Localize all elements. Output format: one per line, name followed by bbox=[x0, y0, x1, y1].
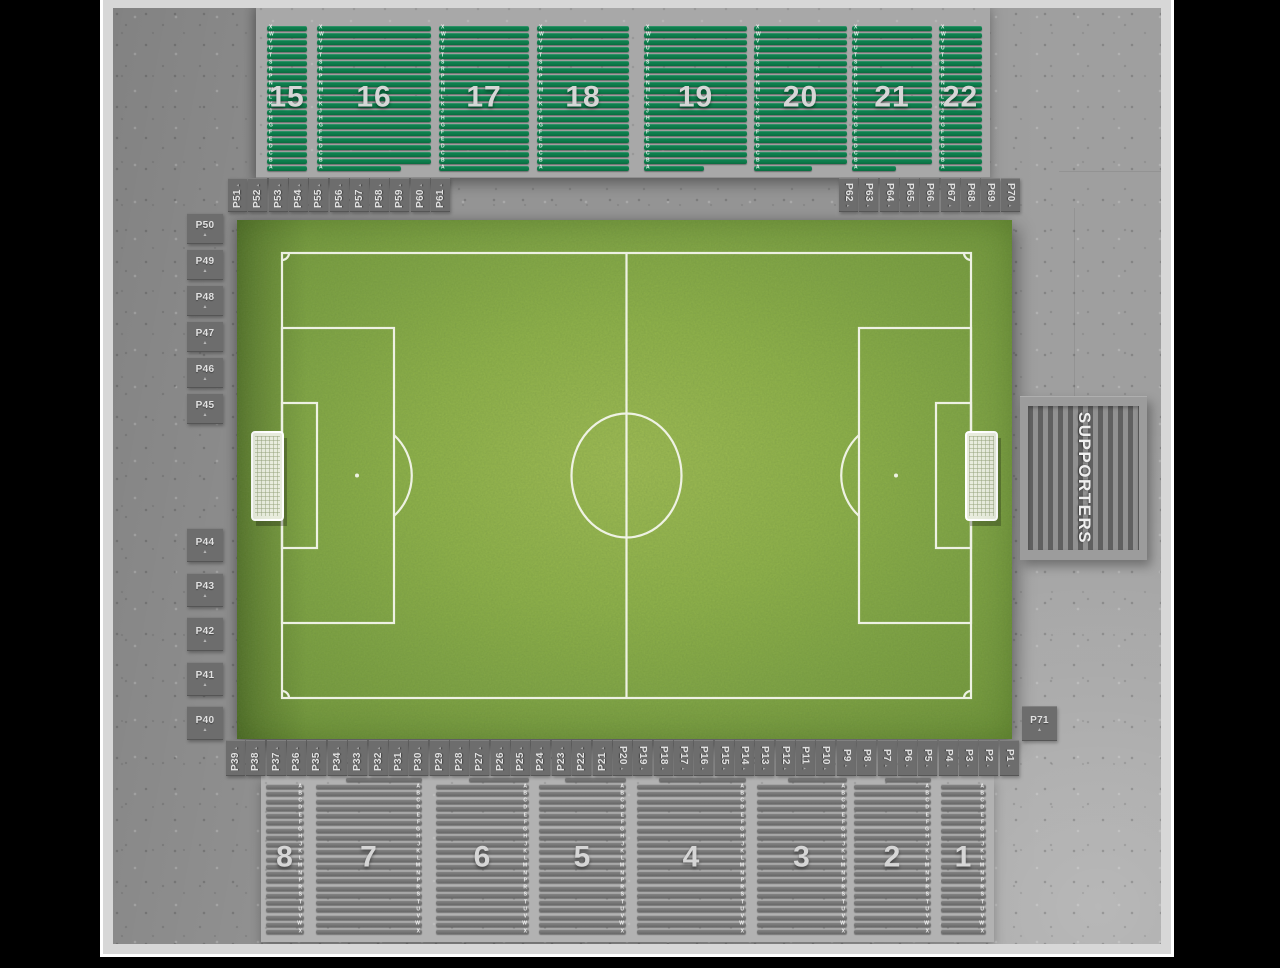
row-letter: S bbox=[926, 893, 929, 898]
gate-p69[interactable]: P69▲ bbox=[981, 178, 1000, 212]
seat-row: B bbox=[644, 159, 747, 164]
gate-p51[interactable]: P51▲ bbox=[228, 178, 247, 212]
section-17[interactable]: XWVUTSRPNMLKJHGFEDCBA17 bbox=[439, 26, 529, 171]
row-letter: H bbox=[298, 835, 302, 840]
seat-row: K bbox=[852, 103, 932, 108]
seat-row: A bbox=[939, 166, 982, 171]
section-3[interactable]: ABCDEFGHJKLMNPRSTUVWX3 bbox=[757, 784, 847, 934]
gate-p28[interactable]: P28▲ bbox=[450, 740, 469, 776]
seat-row: B bbox=[854, 791, 931, 796]
row-letter: T bbox=[756, 54, 759, 59]
seat-row: U bbox=[637, 907, 746, 912]
seat-row: A bbox=[644, 166, 704, 171]
gate-pin-icon: ▲ bbox=[846, 203, 851, 207]
gate-p17[interactable]: P17▲ bbox=[674, 740, 693, 776]
row-letter: E bbox=[319, 138, 322, 143]
gate-p65[interactable]: P65▲ bbox=[900, 178, 919, 212]
gate-pin-icon: ▲ bbox=[416, 746, 421, 750]
gate-p7[interactable]: P7▲ bbox=[878, 740, 897, 776]
row-letter: M bbox=[756, 89, 760, 94]
gate-p4[interactable]: P4▲ bbox=[939, 740, 958, 776]
row-letter: K bbox=[620, 849, 624, 854]
row-letter: S bbox=[621, 893, 624, 898]
gate-p18[interactable]: P18▲ bbox=[654, 740, 673, 776]
row-letter: G bbox=[298, 828, 302, 833]
gate-p29[interactable]: P29▲ bbox=[430, 740, 449, 776]
seat-row: C bbox=[267, 152, 307, 157]
seat-row: J bbox=[316, 842, 422, 847]
seat-row: X bbox=[436, 929, 529, 934]
seat-row: L bbox=[266, 857, 304, 862]
gate-p40[interactable]: P40▲ bbox=[187, 706, 223, 740]
gate-label: P56▲ bbox=[334, 183, 345, 208]
seat-row: D bbox=[539, 806, 626, 811]
seat-row: U bbox=[439, 47, 529, 52]
gate-label: P71 bbox=[1030, 715, 1049, 726]
section-22[interactable]: XWVUTSRPNMLKJHGFEDCBA22 bbox=[939, 26, 982, 171]
seat-row: W bbox=[644, 33, 747, 38]
seat-row: R bbox=[852, 68, 932, 73]
row-letter: L bbox=[646, 96, 649, 101]
row-letter: S bbox=[854, 61, 857, 66]
seat-row: A bbox=[754, 166, 812, 171]
row-letter: S bbox=[417, 893, 420, 898]
row-letter: T bbox=[741, 900, 744, 905]
gate-p47[interactable]: P47▲ bbox=[187, 321, 223, 352]
row-letter: B bbox=[620, 791, 624, 796]
seat-row: X bbox=[939, 26, 982, 31]
seat-row: P bbox=[537, 75, 629, 80]
row-letter: J bbox=[441, 110, 444, 115]
gate-pin-icon: ▲ bbox=[907, 203, 912, 207]
row-letter: F bbox=[319, 131, 322, 136]
row-letter: T bbox=[299, 900, 302, 905]
seat-row: B bbox=[941, 791, 986, 796]
seat-row: H bbox=[852, 117, 932, 122]
row-letter: J bbox=[299, 842, 302, 847]
row-letter: N bbox=[523, 871, 527, 876]
football-pitch bbox=[237, 220, 1012, 739]
row-letter: C bbox=[841, 799, 845, 804]
gate-label: P3▲ bbox=[963, 748, 974, 767]
row-letter: C bbox=[646, 152, 650, 157]
gate-pin-icon: ▲ bbox=[722, 766, 727, 770]
row-letter: W bbox=[269, 33, 274, 38]
row-letter: U bbox=[441, 47, 445, 52]
gate-p25[interactable]: P25▲ bbox=[511, 740, 530, 776]
row-letter: P bbox=[741, 878, 744, 883]
gate-p71[interactable]: P71▲ bbox=[1022, 706, 1057, 741]
row-letter: V bbox=[441, 40, 444, 45]
gate-label: P7▲ bbox=[882, 748, 893, 767]
gate-p50[interactable]: P50▲ bbox=[187, 213, 223, 244]
row-letter: T bbox=[646, 54, 649, 59]
row-letter: A bbox=[539, 166, 543, 171]
gate-p26[interactable]: P26▲ bbox=[491, 740, 510, 776]
row-letter: A bbox=[740, 784, 744, 789]
seat-row: N bbox=[317, 82, 431, 87]
row-letter: J bbox=[941, 110, 944, 115]
row-letter: W bbox=[924, 922, 929, 927]
gate-pin-icon: ▲ bbox=[233, 746, 238, 750]
seat-row: S bbox=[637, 893, 746, 898]
gate-p64[interactable]: P64▲ bbox=[880, 178, 899, 212]
row-letter: J bbox=[756, 110, 759, 115]
gate-p20[interactable]: P20▲ bbox=[613, 740, 632, 776]
gate-p16[interactable]: P16▲ bbox=[694, 740, 713, 776]
seat-row: V bbox=[439, 40, 529, 45]
seat-row: M bbox=[439, 89, 529, 94]
gate-label: P19▲ bbox=[637, 746, 648, 771]
gate-p11[interactable]: P11▲ bbox=[796, 740, 815, 776]
seat-row: G bbox=[644, 124, 747, 129]
row-letter: G bbox=[620, 828, 624, 833]
row-letter: L bbox=[854, 96, 857, 101]
seat-row: E bbox=[754, 138, 847, 143]
row-letter: K bbox=[854, 103, 858, 108]
gate-label: P1▲ bbox=[1004, 748, 1015, 767]
seat-row: L bbox=[754, 96, 847, 101]
seat-row: L bbox=[757, 857, 847, 862]
seat-row: E bbox=[537, 138, 629, 143]
gate-pin-icon: ▲ bbox=[396, 746, 401, 750]
seat-row: R bbox=[267, 68, 307, 73]
gate-pin-icon: ▲ bbox=[661, 766, 666, 770]
gate-p41[interactable]: P41▲ bbox=[187, 662, 223, 696]
seat-row: L bbox=[941, 857, 986, 862]
gate-label: P9▲ bbox=[841, 748, 852, 767]
seat-row: F bbox=[317, 131, 431, 136]
row-letter: M bbox=[925, 864, 929, 869]
seat-row: W bbox=[439, 33, 529, 38]
row-letter: G bbox=[756, 124, 760, 129]
section-4[interactable]: ABCDEFGHJKLMNPRSTUVWX4 bbox=[637, 784, 746, 934]
section-6[interactable]: ABCDEFGHJKLMNPRSTUVWX6 bbox=[436, 784, 529, 934]
section-18[interactable]: XWVUTSRPNMLKJHGFEDCBA18 bbox=[537, 26, 629, 171]
gate-label: P25▲ bbox=[515, 746, 526, 771]
seat-row: B bbox=[852, 159, 932, 164]
row-letter: V bbox=[854, 40, 857, 45]
row-letter: E bbox=[441, 138, 444, 143]
gate-p32[interactable]: P32▲ bbox=[369, 740, 388, 776]
row-letter: S bbox=[981, 893, 984, 898]
seat-row: T bbox=[436, 900, 529, 905]
row-letter: K bbox=[980, 849, 984, 854]
seat-row: N bbox=[439, 82, 529, 87]
gate-p57[interactable]: P57▲ bbox=[350, 178, 369, 212]
gate-p60[interactable]: P60▲ bbox=[411, 178, 430, 212]
seat-row: T bbox=[644, 54, 747, 59]
row-letter: X bbox=[981, 929, 984, 934]
seat-row: S bbox=[436, 893, 529, 898]
row-letter: F bbox=[621, 820, 624, 825]
seat-row: U bbox=[644, 47, 747, 52]
section-19[interactable]: XWVUTSRPNMLKJHGFEDCBA19 bbox=[644, 26, 747, 171]
gate-p12[interactable]: P12▲ bbox=[776, 740, 795, 776]
gate-p15[interactable]: P15▲ bbox=[715, 740, 734, 776]
row-letter: V bbox=[417, 915, 420, 920]
seat-row: A bbox=[267, 166, 307, 171]
row-letter: C bbox=[854, 152, 858, 157]
gate-label: P45 bbox=[196, 400, 215, 411]
section-20[interactable]: XWVUTSRPNMLKJHGFEDCBA20 bbox=[754, 26, 847, 171]
gate-label: P51▲ bbox=[232, 183, 243, 208]
seat-row: J bbox=[941, 842, 986, 847]
gate-pin-icon: ▲ bbox=[377, 183, 382, 187]
seat-row: C bbox=[939, 152, 982, 157]
row-letter: A bbox=[854, 166, 858, 171]
gate-p39[interactable]: P39▲ bbox=[226, 740, 245, 776]
row-letter: P bbox=[842, 878, 845, 883]
seat-row: G bbox=[537, 124, 629, 129]
gate-pin-icon: ▲ bbox=[376, 746, 381, 750]
row-letter: J bbox=[319, 110, 322, 115]
seat-row: L bbox=[537, 96, 629, 101]
seat-row: J bbox=[439, 110, 529, 115]
seat-row bbox=[346, 777, 422, 782]
seat-row: F bbox=[537, 131, 629, 136]
seat-row: N bbox=[637, 871, 746, 876]
gate-p37[interactable]: P37▲ bbox=[267, 740, 286, 776]
section-21[interactable]: XWVUTSRPNMLKJHGFEDCBA21 bbox=[852, 26, 932, 171]
gate-pin-icon: ▲ bbox=[864, 763, 869, 767]
row-letter: S bbox=[269, 61, 272, 66]
seat-row: J bbox=[537, 110, 629, 115]
gate-p63[interactable]: P63▲ bbox=[859, 178, 878, 212]
gate-p21[interactable]: P21▲ bbox=[593, 740, 612, 776]
gate-pin-icon: ▲ bbox=[986, 763, 991, 767]
row-letter: W bbox=[619, 922, 624, 927]
row-letter: X bbox=[926, 929, 929, 934]
gate-pin-icon: ▲ bbox=[203, 639, 208, 643]
gate-p59[interactable]: P59▲ bbox=[390, 178, 409, 212]
section-7[interactable]: ABCDEFGHJKLMNPRSTUVWX7 bbox=[316, 784, 422, 934]
gate-p22[interactable]: P22▲ bbox=[572, 740, 591, 776]
row-letter: E bbox=[981, 813, 984, 818]
row-letter: H bbox=[319, 117, 323, 122]
gate-p24[interactable]: P24▲ bbox=[531, 740, 550, 776]
gate-p70[interactable]: P70▲ bbox=[1001, 178, 1020, 212]
row-letter: H bbox=[740, 835, 744, 840]
gate-p34[interactable]: P34▲ bbox=[328, 740, 347, 776]
seat-row: C bbox=[439, 152, 529, 157]
gate-label: P20▲ bbox=[617, 746, 628, 771]
section-supporters[interactable]: SUPPORTERS bbox=[1020, 396, 1147, 560]
row-letter: F bbox=[299, 820, 302, 825]
row-letter: N bbox=[841, 871, 845, 876]
row-letter: U bbox=[319, 47, 323, 52]
gate-p67[interactable]: P67▲ bbox=[941, 178, 960, 212]
section-15[interactable]: XWVUTSRPNMLKJHGFEDCBA15 bbox=[267, 26, 307, 171]
gate-pin-icon: ▲ bbox=[968, 203, 973, 207]
gate-p14[interactable]: P14▲ bbox=[735, 740, 754, 776]
gate-label: P57▲ bbox=[354, 183, 365, 208]
row-letter: F bbox=[417, 820, 420, 825]
seat-row: T bbox=[939, 54, 982, 59]
gate-p27[interactable]: P27▲ bbox=[470, 740, 489, 776]
gate-label: P36▲ bbox=[291, 746, 302, 771]
seat-row: U bbox=[539, 907, 626, 912]
seat-row: M bbox=[267, 89, 307, 94]
gate-p62[interactable]: P62▲ bbox=[839, 178, 858, 212]
gate-p5[interactable]: P5▲ bbox=[918, 740, 937, 776]
seat-row: M bbox=[637, 864, 746, 869]
seat-row: M bbox=[757, 864, 847, 869]
gate-p36[interactable]: P36▲ bbox=[287, 740, 306, 776]
gate-p35[interactable]: P35▲ bbox=[307, 740, 326, 776]
seat-row: P bbox=[939, 75, 982, 80]
gate-label: P46 bbox=[196, 364, 215, 375]
row-letter: P bbox=[441, 75, 444, 80]
row-letter: W bbox=[297, 922, 302, 927]
row-letter: C bbox=[925, 799, 929, 804]
seat-row: D bbox=[537, 145, 629, 150]
row-letter: B bbox=[841, 791, 845, 796]
gate-p49[interactable]: P49▲ bbox=[187, 249, 223, 280]
gate-p42[interactable]: P42▲ bbox=[187, 617, 223, 651]
supporters-label: SUPPORTERS bbox=[1074, 412, 1094, 544]
seat-row: W bbox=[852, 33, 932, 38]
gate-p66[interactable]: P66▲ bbox=[920, 178, 939, 212]
gate-label: P60▲ bbox=[415, 183, 426, 208]
gate-label: P35▲ bbox=[311, 746, 322, 771]
gate-label: P37▲ bbox=[271, 746, 282, 771]
seat-row: R bbox=[537, 68, 629, 73]
seat-row: F bbox=[852, 131, 932, 136]
gate-p31[interactable]: P31▲ bbox=[389, 740, 408, 776]
seat-row: L bbox=[852, 96, 932, 101]
seat-row: A bbox=[317, 166, 401, 171]
gate-p38[interactable]: P38▲ bbox=[246, 740, 265, 776]
row-letter: U bbox=[416, 907, 420, 912]
row-letter: L bbox=[269, 96, 272, 101]
seat-row: K bbox=[267, 103, 307, 108]
seat-row: V bbox=[317, 40, 431, 45]
row-letter: C bbox=[298, 799, 302, 804]
row-letter: W bbox=[854, 33, 859, 38]
seat-row: D bbox=[754, 145, 847, 150]
gate-p48[interactable]: P48▲ bbox=[187, 285, 223, 316]
gate-p1[interactable]: P1▲ bbox=[1000, 740, 1019, 776]
gate-p10[interactable]: P10▲ bbox=[816, 740, 835, 776]
row-letter: T bbox=[269, 54, 272, 59]
seat-row: S bbox=[854, 893, 931, 898]
gate-label: P27▲ bbox=[474, 746, 485, 771]
row-letter: V bbox=[319, 40, 322, 45]
row-letter: D bbox=[841, 806, 845, 811]
section-1[interactable]: ABCDEFGHJKLMNPRSTUVWX1 bbox=[941, 784, 986, 934]
gate-p58[interactable]: P58▲ bbox=[370, 178, 389, 212]
seat-row: C bbox=[266, 799, 304, 804]
row-letter: C bbox=[523, 799, 527, 804]
row-letter: N bbox=[646, 82, 650, 87]
seat-row: F bbox=[941, 820, 986, 825]
seat-row: G bbox=[266, 828, 304, 833]
row-letter: V bbox=[269, 40, 272, 45]
row-letter: M bbox=[620, 864, 624, 869]
row-letter: P bbox=[299, 878, 302, 883]
row-letter: G bbox=[980, 828, 984, 833]
row-letter: B bbox=[925, 791, 929, 796]
gate-p30[interactable]: P30▲ bbox=[409, 740, 428, 776]
seat-row: J bbox=[852, 110, 932, 115]
section-8[interactable]: ABCDEFGHJKLMNPRSTUVWX8 bbox=[266, 784, 304, 934]
row-letter: V bbox=[539, 40, 542, 45]
gate-p53[interactable]: P53▲ bbox=[269, 178, 288, 212]
gate-p44[interactable]: P44▲ bbox=[187, 528, 223, 562]
row-letter: V bbox=[981, 915, 984, 920]
row-letter: K bbox=[925, 849, 929, 854]
gate-p55[interactable]: P55▲ bbox=[309, 178, 328, 212]
row-letter: L bbox=[981, 857, 984, 862]
row-letter: T bbox=[524, 900, 527, 905]
concrete-seam bbox=[1074, 208, 1075, 403]
seat-row: D bbox=[637, 806, 746, 811]
gate-p9[interactable]: P9▲ bbox=[837, 740, 856, 776]
seat-row: H bbox=[316, 835, 422, 840]
gate-p13[interactable]: P13▲ bbox=[755, 740, 774, 776]
gate-p8[interactable]: P8▲ bbox=[857, 740, 876, 776]
seat-row: F bbox=[854, 820, 931, 825]
row-letter: R bbox=[756, 68, 760, 73]
gate-p54[interactable]: P54▲ bbox=[289, 178, 308, 212]
row-letter: H bbox=[269, 117, 273, 122]
seat-row: E bbox=[539, 813, 626, 818]
seat-row: K bbox=[539, 849, 626, 854]
gate-p23[interactable]: P23▲ bbox=[552, 740, 571, 776]
seat-row: K bbox=[317, 103, 431, 108]
row-letter: A bbox=[941, 166, 945, 171]
gate-p61[interactable]: P61▲ bbox=[431, 178, 450, 212]
gate-p52[interactable]: P52▲ bbox=[248, 178, 267, 212]
gate-p33[interactable]: P33▲ bbox=[348, 740, 367, 776]
gate-pin-icon: ▲ bbox=[274, 746, 279, 750]
seat-row: E bbox=[317, 138, 431, 143]
section-5[interactable]: ABCDEFGHJKLMNPRSTUVWX5 bbox=[539, 784, 626, 934]
row-letter: N bbox=[416, 871, 420, 876]
row-letter: S bbox=[756, 61, 759, 66]
row-letter: W bbox=[522, 922, 527, 927]
section-2[interactable]: ABCDEFGHJKLMNPRSTUVWX2 bbox=[854, 784, 931, 934]
seat-row: H bbox=[757, 835, 847, 840]
gate-p56[interactable]: P56▲ bbox=[330, 178, 349, 212]
gate-p19[interactable]: P19▲ bbox=[633, 740, 652, 776]
seat-row: N bbox=[316, 871, 422, 876]
row-letter: B bbox=[740, 791, 744, 796]
gate-p2[interactable]: P2▲ bbox=[979, 740, 998, 776]
gate-p43[interactable]: P43▲ bbox=[187, 573, 223, 607]
gate-pin-icon: ▲ bbox=[579, 746, 584, 750]
gate-p3[interactable]: P3▲ bbox=[959, 740, 978, 776]
section-16[interactable]: XWVUTSRPNMLKJHGFEDCBA16 bbox=[317, 26, 431, 171]
seat-row: W bbox=[637, 922, 746, 927]
right-goal bbox=[966, 432, 1001, 526]
gate-p68[interactable]: P68▲ bbox=[961, 178, 980, 212]
gate-p6[interactable]: P6▲ bbox=[898, 740, 917, 776]
seat-row: N bbox=[539, 871, 626, 876]
gate-p45[interactable]: P45▲ bbox=[187, 393, 223, 424]
row-letter: M bbox=[269, 89, 273, 94]
row-letter: A bbox=[756, 166, 760, 171]
gate-p46[interactable]: P46▲ bbox=[187, 357, 223, 388]
row-letter: W bbox=[941, 33, 946, 38]
gate-label: P28▲ bbox=[454, 746, 465, 771]
seat-row: X bbox=[316, 929, 422, 934]
row-letter: M bbox=[740, 864, 744, 869]
seat-row: B bbox=[754, 159, 847, 164]
gate-pin-icon: ▲ bbox=[357, 183, 362, 187]
row-letter: X bbox=[756, 26, 759, 31]
